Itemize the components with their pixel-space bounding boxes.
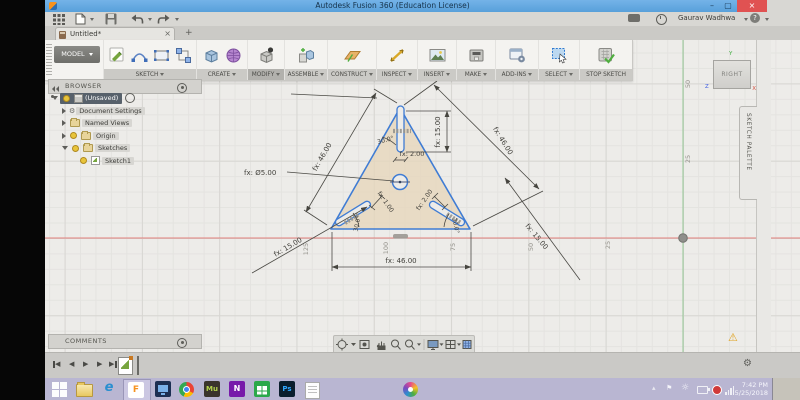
tree-row-sketch1[interactable]: Sketch1 — [48, 155, 218, 168]
panel-options-icon[interactable] — [177, 83, 187, 93]
svg-text:25: 25 — [684, 155, 692, 163]
windows-taskbar: e F Mu N Ps ▴ ⚑ ☼ 7:42 PM 5/25/2018 — [45, 378, 800, 400]
tree-label: Sketch1 — [102, 157, 134, 165]
chevron-down-icon[interactable] — [744, 18, 748, 21]
redo-icon[interactable] — [157, 13, 171, 25]
tab-untitled[interactable]: Untitled* × — [55, 27, 175, 41]
chevron-down-icon — [408, 73, 412, 76]
visibility-bulb-icon[interactable] — [63, 95, 70, 102]
svg-text:125: 125 — [302, 243, 310, 255]
document-tab-bar: Untitled* × + — [45, 26, 800, 40]
tree-row-sketches[interactable]: Sketches — [48, 142, 218, 155]
orbit-icon[interactable] — [336, 339, 348, 351]
notepad-icon[interactable] — [304, 381, 320, 397]
expand-icon[interactable] — [62, 146, 68, 150]
tree-row-root[interactable]: (Unsaved) — [48, 92, 218, 105]
svg-text:100: 100 — [382, 242, 390, 254]
browser-title: BROWSER — [65, 82, 102, 90]
timeline-settings-gear-icon[interactable]: ⚙ — [743, 358, 752, 369]
timeline-bar: ◀ ◀ ▶ ▶ ▶ ⚙ — [45, 352, 800, 379]
sketch-palette-tab[interactable]: SKETCH PALETTE — [739, 106, 757, 200]
step-forward-icon[interactable]: ▶ — [97, 360, 102, 368]
ribbon-group-stop-sketch: STOP SKETCH — [579, 40, 632, 80]
svg-text:75: 75 — [449, 243, 457, 251]
chevron-down-icon — [320, 73, 324, 76]
show-desktop-button[interactable] — [772, 378, 800, 400]
expand-icon[interactable] — [62, 108, 66, 114]
zoom-window-icon[interactable] — [406, 340, 422, 350]
assemble-tool-icon[interactable] — [297, 46, 316, 65]
chevron-down-icon — [528, 73, 532, 76]
tree-label: Sketches — [95, 144, 130, 152]
modify-tool-icon[interactable] — [257, 46, 276, 65]
dim-slot-15: fx: 15.00 — [434, 116, 442, 147]
insert-image-icon[interactable] — [428, 46, 447, 65]
browser-tree: (Unsaved) ⚙ Document Settings Named View… — [48, 92, 218, 167]
internet-explorer-icon[interactable]: e — [101, 381, 117, 397]
ribbon-group-select: SELECT — [538, 40, 579, 80]
weather-icon[interactable]: ☼ — [681, 383, 689, 393]
left-black-bar — [0, 0, 45, 400]
tray-expand-icon[interactable]: ▴ — [652, 384, 656, 392]
timeline-sketch-feature[interactable] — [118, 357, 133, 375]
file-menu-icon[interactable] — [75, 13, 89, 25]
look-at-icon[interactable] — [360, 341, 369, 349]
dim-base-46: fx: 46.00 — [385, 257, 416, 265]
chevron-down-icon — [160, 73, 164, 76]
group-label-assemble[interactable]: ASSEMBLE — [285, 69, 327, 80]
group-label-inspect[interactable]: INSPECT — [377, 69, 417, 80]
svg-text:50: 50 — [527, 243, 535, 251]
minimize-button[interactable]: – — [705, 0, 719, 12]
step-back-icon[interactable]: ◀ — [69, 360, 74, 368]
chevron-down-icon — [276, 73, 280, 76]
visibility-bulb-icon[interactable] — [70, 132, 77, 139]
ribbon-group-inspect: INSPECT — [376, 40, 417, 80]
ribbon-group-insert: INSERT — [417, 40, 456, 80]
tree-label: Named Views — [82, 119, 132, 127]
fusion360-window: Autodesk Fusion 360 (Education License) … — [0, 0, 800, 400]
inspect-measure-icon[interactable] — [388, 46, 407, 65]
visibility-bulb-icon[interactable] — [72, 145, 79, 152]
axis-z-label: Z — [705, 84, 709, 90]
ribbon-group-sketch: SKETCH — [103, 40, 196, 80]
notification-badge-icon[interactable] — [712, 385, 722, 395]
dim-left-46: fx: 46.00 — [311, 141, 334, 172]
toolbar-grip[interactable] — [46, 44, 52, 76]
taskbar-clock[interactable]: 7:42 PM 5/25/2018 — [735, 381, 768, 397]
chevron-down-icon — [232, 73, 236, 76]
document-icon — [59, 31, 66, 39]
right-panel-strip — [756, 40, 771, 352]
collapse-panel-icon[interactable] — [52, 84, 60, 90]
start-button[interactable] — [52, 381, 68, 397]
chevron-down-icon[interactable] — [765, 18, 769, 21]
window-titlebar: Autodesk Fusion 360 (Education License) … — [45, 0, 800, 12]
root-label: (Unsaved) — [85, 94, 118, 102]
tree-row-origin[interactable]: Origin — [48, 130, 218, 143]
select-tool-icon[interactable] — [550, 46, 569, 65]
ribbon-group-create: CREATE — [196, 40, 247, 80]
chevron-down-icon — [446, 73, 450, 76]
chevron-down-icon[interactable] — [90, 18, 94, 21]
action-center-flag-icon[interactable]: ⚑ — [666, 384, 672, 392]
component-icon — [74, 94, 83, 103]
viewports-icon[interactable] — [446, 341, 461, 349]
timeline-position-marker[interactable] — [137, 356, 139, 375]
ribbon-group-construct: CONSTRUCT — [327, 40, 376, 80]
construct-plane-icon[interactable] — [343, 46, 362, 65]
clock-time: 7:42 PM — [735, 381, 768, 389]
view-cube-face[interactable]: RIGHT — [713, 60, 751, 89]
group-label-stop-sketch[interactable]: STOP SKETCH — [580, 69, 632, 80]
group-label-select[interactable]: SELECT — [539, 69, 579, 80]
battery-icon[interactable] — [697, 386, 708, 394]
undo-icon[interactable] — [130, 13, 144, 25]
file-explorer-icon[interactable] — [76, 381, 92, 397]
dim-circle-dia: fx: Ø5.00 — [244, 169, 276, 177]
ribbon-toolbar: MODEL SKETCH CREATE — [45, 40, 633, 81]
comments-title: COMMENTS — [65, 337, 107, 345]
chevron-down-icon[interactable] — [148, 18, 152, 21]
dim-bl-15: fx: 15.00 — [272, 236, 303, 259]
group-label-insert[interactable]: INSERT — [418, 69, 456, 80]
view-cube[interactable]: Y RIGHT Z X — [705, 52, 757, 98]
create-sphere-icon[interactable] — [224, 46, 243, 65]
visibility-bulb-icon[interactable] — [80, 157, 87, 164]
job-status-icon[interactable] — [656, 14, 667, 25]
group-label-addins[interactable]: ADD-INS — [496, 69, 538, 80]
titlebar-corner — [767, 0, 800, 12]
chevron-down-icon[interactable] — [175, 18, 179, 21]
folder-icon — [83, 144, 93, 152]
circle-centerpoint[interactable] — [399, 181, 402, 184]
dim-right-46: fx: 46.00 — [491, 126, 514, 157]
help-icon[interactable]: ? — [750, 13, 760, 23]
windows-store-icon[interactable] — [254, 381, 270, 397]
base-midpoint-marker — [393, 234, 408, 239]
chevron-icon[interactable] — [351, 343, 356, 346]
tree-label: Document Settings — [76, 107, 144, 115]
skip-end-icon[interactable] — [115, 361, 117, 368]
chrome-icon[interactable] — [179, 381, 195, 397]
ribbon-group-assemble: ASSEMBLE — [284, 40, 327, 80]
quick-access-toolbar: Gaurav Wadhwa ? — [45, 12, 800, 27]
window-title: Autodesk Fusion 360 (Education License) — [45, 1, 740, 10]
sketch-canvas[interactable]: 125 100 75 50 25 50 25 — [45, 40, 800, 352]
gear-icon: ⚙ — [69, 107, 75, 115]
sketch-icon — [91, 156, 100, 165]
skip-start-icon[interactable]: ◀ — [55, 360, 60, 368]
origin-point[interactable] — [679, 234, 688, 243]
ribbon-group-modify: MODIFY — [247, 40, 284, 80]
paint-app-icon[interactable] — [403, 381, 419, 397]
tree-label: Origin — [93, 132, 119, 140]
expand-icon[interactable] — [62, 120, 66, 126]
apps-grid-icon[interactable] — [53, 13, 67, 25]
svg-text:50: 50 — [684, 80, 692, 88]
tab-close-icon[interactable]: × — [164, 29, 171, 38]
folder-icon — [70, 119, 80, 127]
addins-icon[interactable] — [508, 46, 527, 65]
workspace-selector[interactable]: MODEL — [54, 46, 100, 63]
tree-row-document-settings[interactable]: ⚙ Document Settings — [48, 105, 218, 118]
chevron-down-icon — [369, 73, 373, 76]
ribbon-group-addins: ADD-INS — [495, 40, 538, 80]
group-label-make[interactable]: MAKE — [457, 69, 495, 80]
pan-hand-icon[interactable] — [377, 342, 385, 350]
skip-end-icon[interactable]: ▶ — [109, 360, 114, 368]
maximize-button[interactable]: ▢ — [721, 0, 735, 12]
clock-date: 5/25/2018 — [735, 389, 768, 397]
new-tab-icon[interactable]: + — [185, 28, 193, 38]
expand-icon[interactable] — [62, 133, 66, 139]
chevron-down-icon — [569, 73, 573, 76]
chevron-down-icon — [89, 53, 93, 56]
fusion360-taskbar-button[interactable]: F — [123, 379, 151, 400]
rectangle-tool-icon[interactable] — [152, 46, 171, 65]
panel-options-icon[interactable] — [177, 338, 187, 348]
svg-text:25: 25 — [604, 241, 612, 249]
group-label-modify[interactable]: MODIFY — [248, 69, 284, 80]
group-label-construct[interactable]: CONSTRUCT — [328, 69, 376, 80]
chevron-down-icon — [483, 73, 487, 76]
adobe-muse-icon[interactable]: Mu — [204, 381, 220, 397]
sketch-palette-label: SKETCH PALETTE — [745, 113, 751, 171]
dim-slot-width: fx: 2.00 — [400, 150, 425, 158]
comments-panel-header[interactable]: COMMENTS — [48, 334, 202, 349]
activate-radio-icon[interactable] — [125, 93, 135, 103]
axis-y-label: Y — [729, 51, 732, 57]
folder-icon — [81, 132, 91, 140]
group-label-create[interactable]: CREATE — [197, 69, 247, 80]
tab-label: Untitled* — [70, 30, 101, 38]
zoom-icon[interactable] — [392, 340, 401, 350]
tree-row-named-views[interactable]: Named Views — [48, 117, 218, 130]
account-menu[interactable]: Gaurav Wadhwa — [678, 14, 735, 22]
create-sketch-icon[interactable] — [108, 46, 127, 65]
ribbon-group-make: MAKE — [456, 40, 495, 80]
app-icon-dark[interactable] — [155, 381, 171, 397]
grid-settings-icon[interactable] — [463, 341, 471, 349]
close-button[interactable]: × — [737, 0, 767, 12]
notifications-icon[interactable] — [628, 14, 640, 22]
display-settings-icon[interactable] — [428, 341, 444, 350]
stop-sketch-icon[interactable] — [597, 46, 616, 65]
make-3dprint-icon[interactable] — [467, 46, 486, 65]
photoshop-icon[interactable]: Ps — [279, 381, 295, 397]
warning-icon[interactable]: ⚠ — [728, 331, 738, 344]
save-icon[interactable] — [105, 13, 119, 25]
create-box-icon[interactable] — [202, 46, 221, 65]
arc-tool-icon[interactable] — [130, 46, 149, 65]
play-icon[interactable]: ▶ — [83, 360, 88, 368]
onenote-icon[interactable]: N — [229, 381, 245, 397]
constraints-tool-icon[interactable] — [174, 46, 193, 65]
